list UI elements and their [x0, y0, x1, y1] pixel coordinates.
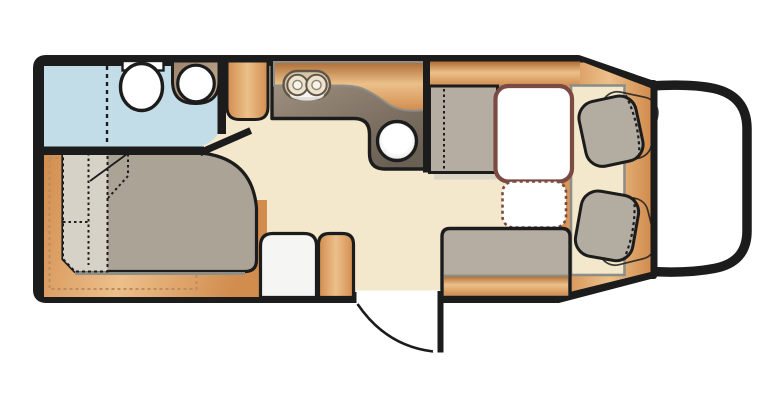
table-extension	[503, 182, 567, 228]
entry-door-leaf	[438, 291, 444, 353]
bedroom	[44, 152, 267, 297]
motorhome-floorplan	[0, 0, 784, 418]
table	[496, 86, 573, 182]
wood-pillar	[319, 234, 354, 298]
entry-door-opening	[357, 291, 441, 309]
floorplan-canvas	[0, 0, 784, 418]
washroom-wall-bottom	[38, 147, 204, 156]
front-bench-base	[444, 276, 568, 296]
side-bench-seat	[430, 86, 498, 173]
toilet	[121, 64, 163, 111]
hob-2-burner	[284, 71, 331, 101]
wardrobe	[261, 234, 317, 298]
washbasin	[178, 65, 215, 102]
washroom-wall-right	[218, 61, 227, 134]
vehicle-nose	[646, 80, 748, 279]
tall-cabinet	[227, 61, 268, 120]
door-swing-arc	[358, 304, 434, 352]
round-sink	[378, 122, 417, 161]
overhead-shelf-strip	[430, 62, 580, 87]
folded-bed-section	[63, 153, 108, 272]
